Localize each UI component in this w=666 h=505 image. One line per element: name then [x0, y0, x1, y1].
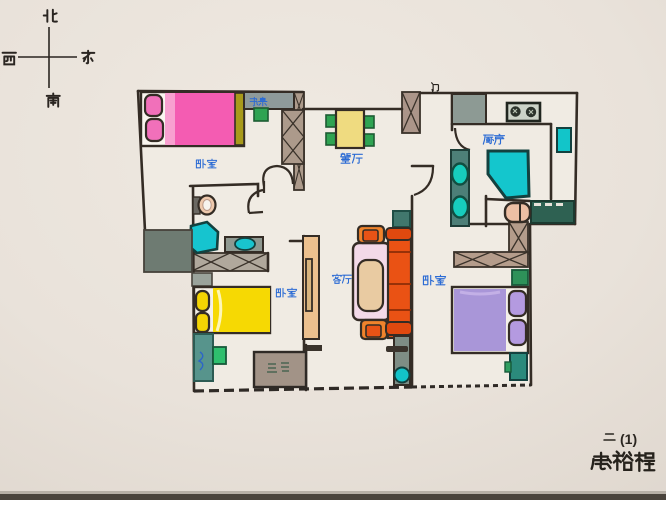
- svg-text:(1): (1): [620, 431, 637, 447]
